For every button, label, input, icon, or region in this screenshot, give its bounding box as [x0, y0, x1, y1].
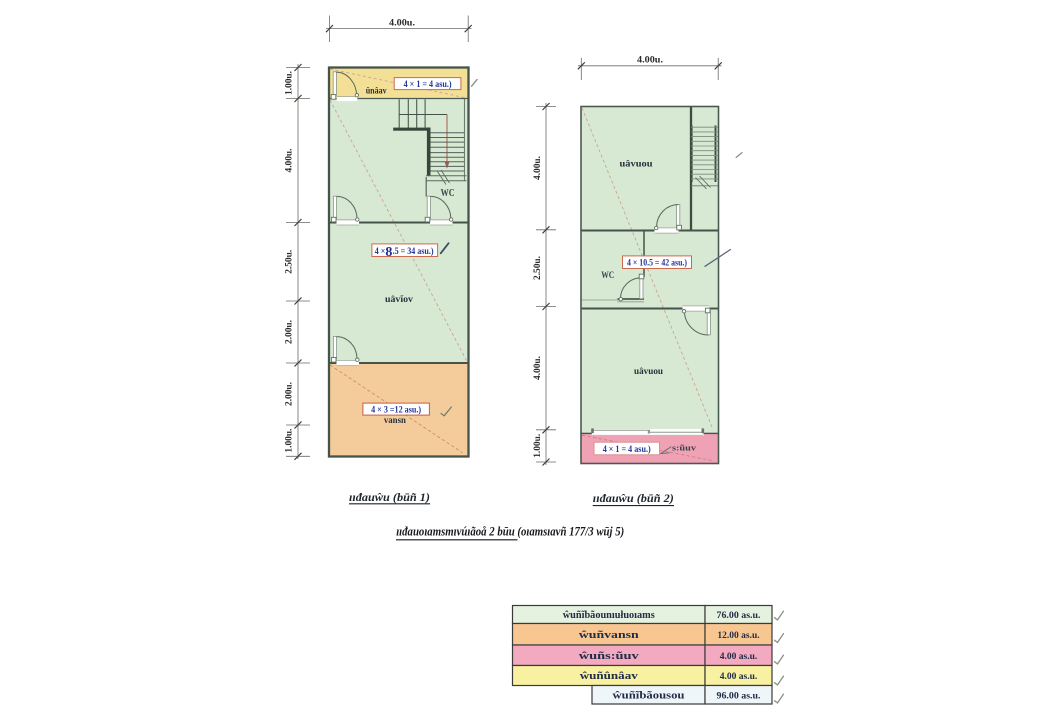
svg-text:4.00 as.u.: 4.00 as.u. [720, 672, 757, 682]
svg-text:.5 = 34 asu.): .5 = 34 asu.) [393, 246, 434, 256]
svg-text:ŵuñĩbãounıułuoıams: ŵuñĩbãounıułuoıams [563, 610, 655, 621]
svg-text:4 × 3 =12 asu.): 4 × 3 =12 asu.) [371, 405, 421, 415]
svg-text:ııđauŵu (būñ 2): ııđauŵu (būñ 2) [593, 491, 674, 505]
svg-text:uâvĩov: uâvĩov [385, 295, 413, 305]
svg-text:2.00u.: 2.00u. [285, 320, 295, 344]
svg-text:2.50u.: 2.50u. [533, 256, 543, 280]
svg-text:ŵuñĩbãousou: ŵuñĩbãousou [613, 690, 685, 701]
svg-text:4.00u.: 4.00u. [533, 156, 543, 180]
svg-text:uâvuou: uâvuou [634, 367, 664, 377]
svg-text:4 × 1 = 4 asu.): 4 × 1 = 4 asu.) [404, 79, 452, 89]
svg-text:1.00u.: 1.00u. [533, 434, 543, 458]
svg-text:4.00u.: 4.00u. [285, 149, 295, 173]
svg-text:WC: WC [441, 188, 455, 199]
svg-text:12.00 as.u.: 12.00 as.u. [717, 631, 759, 641]
svg-text:96.00 as.u.: 96.00 as.u. [717, 691, 761, 701]
svg-text:s:ũuv: s:ũuv [672, 442, 697, 452]
svg-text:uâvuou: uâvuou [620, 160, 654, 170]
svg-text:4.00 as.u.: 4.00 as.u. [720, 652, 757, 662]
svg-text:4.00u.: 4.00u. [637, 56, 663, 66]
svg-text:4 × 10.5 = 42 asu.): 4 × 10.5 = 42 asu.) [627, 257, 687, 267]
svg-text:2.50u.: 2.50u. [285, 250, 295, 274]
svg-text:4.00u.: 4.00u. [389, 19, 415, 29]
svg-text:76.00 as.u.: 76.00 as.u. [717, 611, 761, 621]
svg-text:1.00u.: 1.00u. [285, 429, 295, 453]
svg-text:WC: WC [601, 270, 614, 281]
svg-text:2.00u.: 2.00u. [285, 382, 295, 406]
svg-text:vansn: vansn [384, 415, 406, 425]
svg-text:4 ×: 4 × [375, 246, 386, 256]
svg-text:4 × 1 = 4 asu.): 4 × 1 = 4 asu.) [603, 444, 651, 454]
svg-text:4.00u.: 4.00u. [533, 356, 543, 380]
svg-text:ûnâav: ûnâav [366, 87, 387, 97]
svg-text:1.00u.: 1.00u. [285, 71, 295, 95]
svg-text:ııđauŵu (būñ 1): ııđauŵu (būñ 1) [349, 490, 430, 504]
svg-text:ŵuñs:ũuv: ŵuñs:ũuv [579, 651, 640, 662]
svg-text:8: 8 [385, 245, 392, 260]
svg-text:ŵuñvansn: ŵuñvansn [579, 630, 639, 641]
svg-text:ŵuñûnâav: ŵuñûnâav [580, 671, 639, 682]
svg-text:ııđauoıamsmıvúıãoå 2 būu (oıam: ııđauoıamsmıvúıãoå 2 būu (oıamsıavñ 177/… [396, 525, 624, 539]
